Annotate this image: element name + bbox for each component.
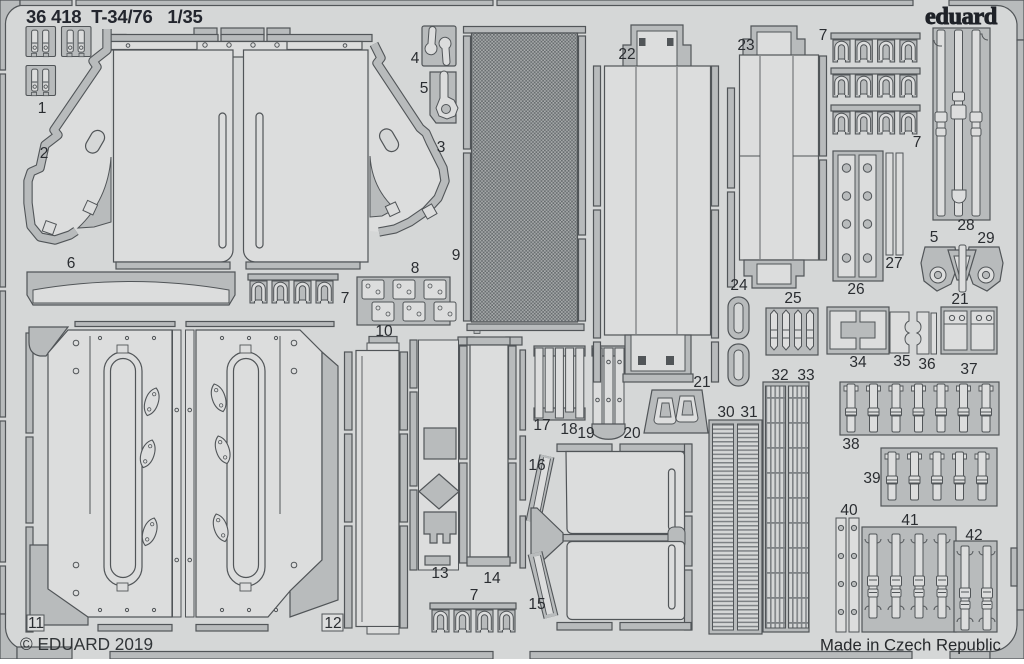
svg-text:29: 29 xyxy=(977,230,994,247)
svg-text:eduard: eduard xyxy=(925,3,998,30)
svg-text:7: 7 xyxy=(819,27,828,44)
svg-text:21: 21 xyxy=(693,374,710,391)
svg-text:5: 5 xyxy=(930,229,939,246)
svg-text:39: 39 xyxy=(863,470,880,487)
svg-text:36 418 T-34/76 1/35: 36 418 T-34/76 1/35 xyxy=(26,6,203,27)
svg-text:21: 21 xyxy=(951,291,968,308)
svg-text:11: 11 xyxy=(28,615,44,632)
svg-text:16: 16 xyxy=(528,457,545,474)
svg-text:Made in Czech Republic: Made in Czech Republic xyxy=(820,636,1001,655)
svg-text:7: 7 xyxy=(341,290,350,307)
svg-text:42: 42 xyxy=(965,527,982,544)
svg-text:33: 33 xyxy=(797,367,814,384)
svg-text:15: 15 xyxy=(528,596,545,613)
svg-text:37: 37 xyxy=(960,361,977,378)
svg-text:4: 4 xyxy=(411,50,420,67)
svg-text:13: 13 xyxy=(431,565,448,582)
svg-text:9: 9 xyxy=(452,247,461,264)
svg-text:19: 19 xyxy=(577,425,594,442)
svg-text:5: 5 xyxy=(420,80,429,97)
svg-text:38: 38 xyxy=(842,436,859,453)
svg-text:31: 31 xyxy=(740,404,757,421)
svg-text:14: 14 xyxy=(483,570,501,587)
svg-text:27: 27 xyxy=(885,255,902,272)
svg-text:2: 2 xyxy=(40,145,49,162)
svg-text:23: 23 xyxy=(737,37,754,54)
svg-text:24: 24 xyxy=(730,277,748,294)
svg-text:18: 18 xyxy=(560,421,577,438)
svg-text:3: 3 xyxy=(437,139,446,156)
svg-text:17: 17 xyxy=(533,417,550,434)
svg-text:26: 26 xyxy=(847,281,864,298)
svg-text:41: 41 xyxy=(901,512,918,529)
svg-text:© EDUARD 2019: © EDUARD 2019 xyxy=(20,634,153,654)
svg-text:20: 20 xyxy=(623,425,641,442)
svg-text:22: 22 xyxy=(618,46,635,63)
svg-text:40: 40 xyxy=(840,502,858,519)
svg-text:34: 34 xyxy=(849,354,867,371)
svg-text:35: 35 xyxy=(893,353,910,370)
svg-text:8: 8 xyxy=(411,260,420,277)
svg-text:6: 6 xyxy=(67,255,76,272)
svg-text:12: 12 xyxy=(324,615,341,632)
svg-text:25: 25 xyxy=(784,290,801,307)
svg-text:36: 36 xyxy=(918,356,935,373)
svg-text:7: 7 xyxy=(913,134,922,151)
svg-text:32: 32 xyxy=(771,367,788,384)
svg-text:30: 30 xyxy=(717,404,735,421)
svg-text:7: 7 xyxy=(470,587,479,604)
svg-text:1: 1 xyxy=(38,100,47,117)
svg-text:28: 28 xyxy=(957,217,974,234)
